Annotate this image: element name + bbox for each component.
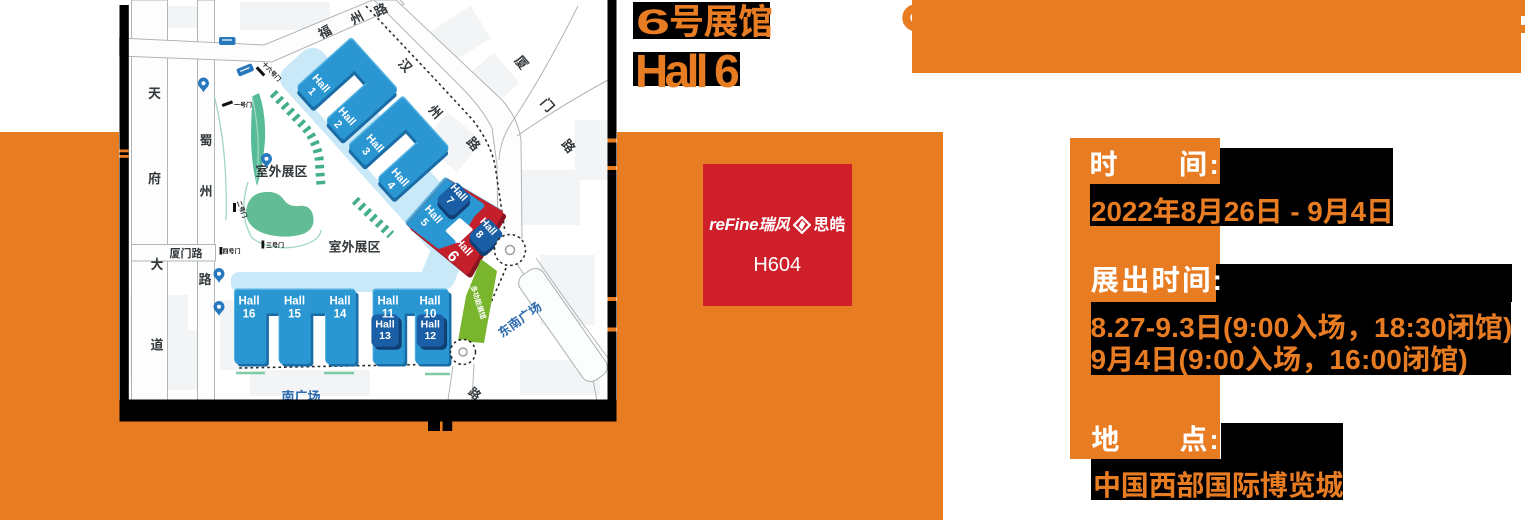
svg-text:13: 13 <box>379 330 391 342</box>
svg-text:Hall: Hall <box>419 296 440 308</box>
svg-text:14: 14 <box>334 309 347 321</box>
svg-text:Hall: Hall <box>421 319 440 331</box>
svg-text:厦: 厦 <box>170 245 181 261</box>
svg-text:16: 16 <box>243 309 256 321</box>
svg-text:Hall: Hall <box>329 296 350 308</box>
svg-text:12: 12 <box>424 330 436 342</box>
svg-text:门: 门 <box>181 245 192 261</box>
svg-text:Hall: Hall <box>238 296 259 308</box>
svg-text:天: 天 <box>148 83 161 102</box>
svg-text:15: 15 <box>288 309 301 321</box>
svg-text:室外展区: 室外展区 <box>328 237 380 256</box>
svg-text:府: 府 <box>148 168 161 187</box>
svg-text:Hall: Hall <box>284 296 305 308</box>
svg-text:路: 路 <box>192 245 203 261</box>
svg-text:室外展区: 室外展区 <box>255 161 307 180</box>
svg-text:州: 州 <box>199 181 212 200</box>
svg-text:一号门: 一号门 <box>234 100 252 109</box>
svg-text:蜀: 蜀 <box>199 130 212 149</box>
svg-text:Hall: Hall <box>377 296 398 308</box>
svg-text:道: 道 <box>150 335 163 354</box>
svg-text:四号门: 四号门 <box>222 247 240 256</box>
svg-text:路: 路 <box>198 269 211 288</box>
svg-text:三号门: 三号门 <box>266 241 284 250</box>
svg-text:Hall: Hall <box>375 319 394 331</box>
svg-text:大: 大 <box>150 254 163 273</box>
